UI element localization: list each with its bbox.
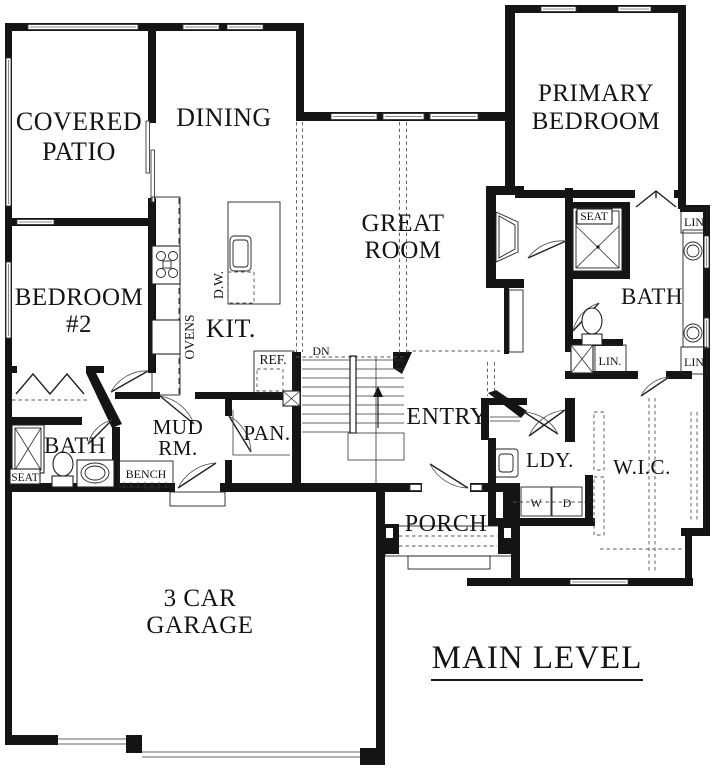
label-kitchen: KIT. xyxy=(206,314,256,343)
laundry-sink xyxy=(494,449,518,477)
toilet-right xyxy=(582,308,602,345)
sink-left xyxy=(77,460,114,487)
label-bath-right: BATH xyxy=(621,284,683,309)
chase-box xyxy=(283,391,300,406)
label-dryer: D xyxy=(563,496,572,510)
label-stairs-down: DN xyxy=(312,344,330,358)
label-covered-patio-2: PATIO xyxy=(42,137,116,166)
label-porch: PORCH xyxy=(405,511,488,537)
label-great-room-2: ROOM xyxy=(364,237,441,264)
linen-hamper-box xyxy=(571,345,593,373)
cooktop xyxy=(152,246,180,284)
kitchen-island xyxy=(228,202,280,304)
porch-step xyxy=(408,556,490,569)
porch-column-left xyxy=(383,524,399,554)
label-garage-1: 3 CAR xyxy=(164,585,237,612)
garage-doors xyxy=(57,739,360,757)
double-vanity xyxy=(683,230,704,347)
label-primary-bedroom-2: BEDROOM xyxy=(532,108,661,135)
label-bath-left: BATH xyxy=(44,433,106,458)
dashed-lines xyxy=(12,122,697,572)
label-refrigerator: REF. xyxy=(259,352,286,367)
staircase xyxy=(302,356,404,483)
label-linen-bottom-right: LIN xyxy=(684,355,704,369)
label-linen-top-right: LIN xyxy=(684,215,704,229)
label-covered-patio-1: COVERED xyxy=(16,107,142,136)
floor-plan-page: COVERED PATIO DINING PRIMARY BEDROOM GRE… xyxy=(0,0,716,768)
label-bedroom2-1: BEDROOM xyxy=(15,284,144,311)
label-ovens: OVENS xyxy=(182,314,197,359)
plan-title: MAIN LEVEL xyxy=(432,640,643,676)
label-washer: W xyxy=(530,496,542,510)
label-seat-right: SEAT xyxy=(580,211,607,223)
label-great-room-1: GREAT xyxy=(361,210,444,237)
label-walk-in-closet: W.I.C. xyxy=(613,455,671,479)
label-seat-left: SEAT xyxy=(11,472,38,484)
floor-plan-drawing: COVERED PATIO DINING PRIMARY BEDROOM GRE… xyxy=(0,0,716,768)
labels: COVERED PATIO DINING PRIMARY BEDROOM GRE… xyxy=(11,80,704,680)
kitchen-counter xyxy=(152,197,180,395)
label-garage-2: GARAGE xyxy=(146,612,253,639)
label-pantry: PAN. xyxy=(243,421,290,445)
label-dining: DINING xyxy=(176,103,271,132)
porch-column-right xyxy=(498,524,514,554)
dishwasher-box xyxy=(228,272,254,303)
label-mud-room-2: RM. xyxy=(158,436,197,460)
label-dishwasher: D.W. xyxy=(211,271,226,299)
label-bench: BENCH xyxy=(126,467,167,481)
label-laundry: LDY. xyxy=(526,448,574,472)
label-bedroom2-2: #2 xyxy=(66,311,92,338)
wall-ovens xyxy=(152,320,180,354)
label-primary-bedroom-1: PRIMARY xyxy=(538,80,654,107)
label-linen-bath: LIN. xyxy=(599,354,622,368)
label-entry: ENTRY xyxy=(406,404,487,430)
garage-step xyxy=(170,492,225,506)
media-niche xyxy=(509,290,523,352)
